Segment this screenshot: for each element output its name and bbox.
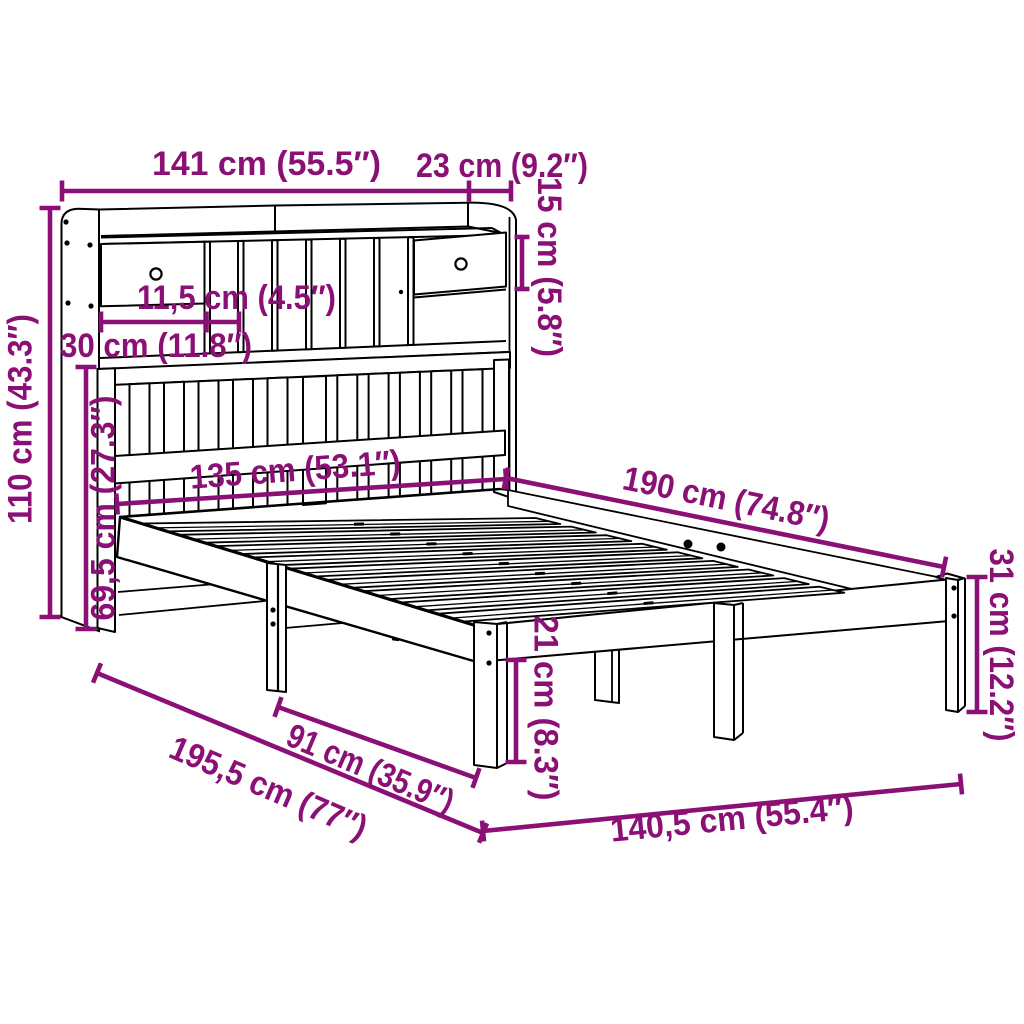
svg-text:141 cm (55.5″): 141 cm (55.5″): [152, 145, 381, 183]
svg-text:21 cm (8.3″): 21 cm (8.3″): [527, 616, 565, 801]
svg-text:11,5 cm (4.5″): 11,5 cm (4.5″): [137, 279, 336, 317]
svg-text:31 cm (12.2″): 31 cm (12.2″): [982, 549, 1020, 742]
svg-text:15 cm (5.8″): 15 cm (5.8″): [530, 177, 568, 357]
svg-text:30 cm (11.8″): 30 cm (11.8″): [60, 327, 252, 365]
svg-text:110 cm (43.3″): 110 cm (43.3″): [2, 314, 40, 524]
